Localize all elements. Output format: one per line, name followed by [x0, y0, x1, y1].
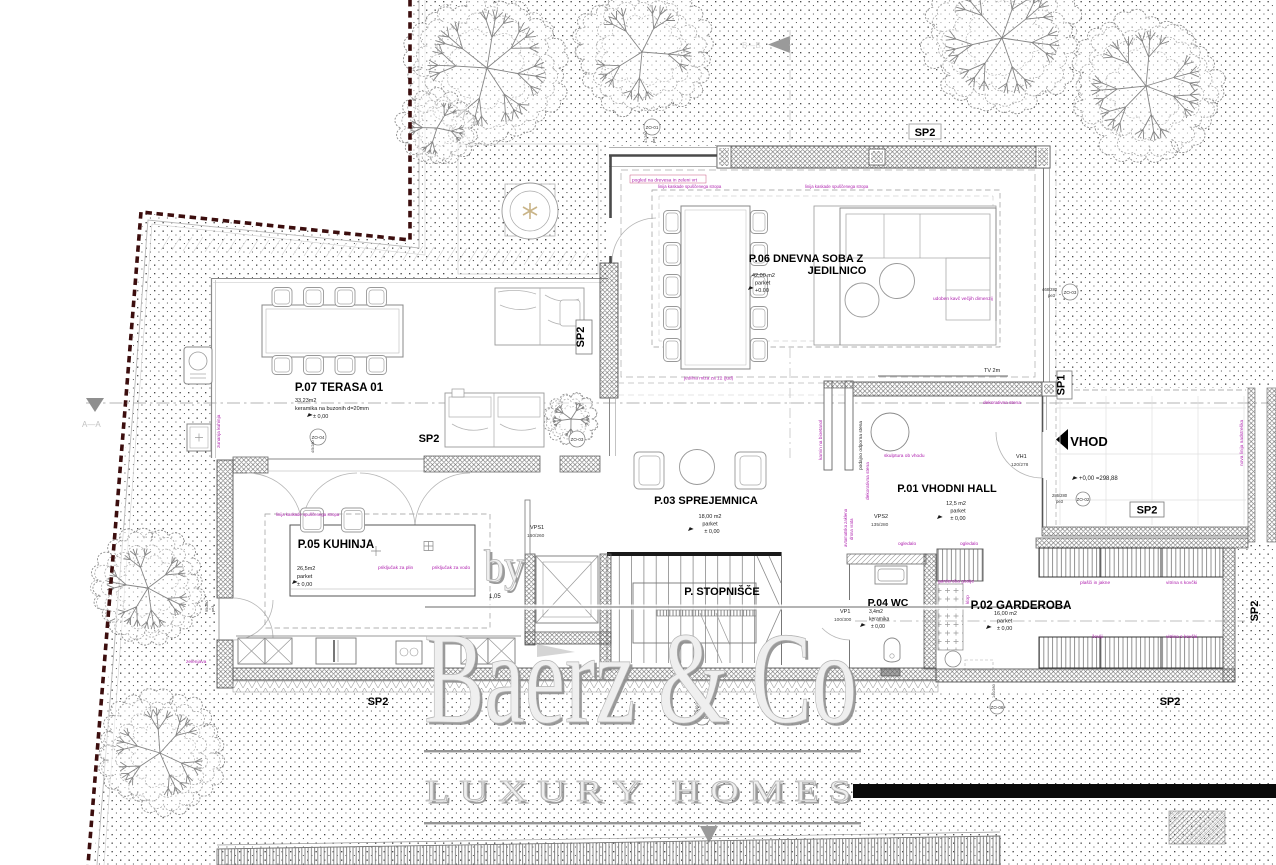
- svg-text:16,00 m2: 16,00 m2: [994, 611, 1017, 617]
- svg-text:P.03 SPREJEMNICA: P.03 SPREJEMNICA: [654, 495, 758, 507]
- svg-text:ZO-03: ZO-03: [1064, 290, 1077, 295]
- svg-text:dekorativna stena: dekorativna stena: [865, 462, 871, 500]
- svg-text:linija kaskade spuščenega stro: linija kaskade spuščenega stropa: [805, 184, 869, 189]
- svg-text:klop: klop: [965, 595, 971, 604]
- svg-text:JEDILNICO: JEDILNICO: [808, 265, 867, 277]
- svg-text:ZO-01: ZO-01: [646, 125, 659, 130]
- svg-text:pogled na drevesa in zeleni vr: pogled na drevesa in zeleni vrt: [632, 178, 698, 184]
- svg-text:P.01 VHODNI HALL: P.01 VHODNI HALL: [897, 483, 997, 495]
- svg-text:135/280: 135/280: [871, 522, 889, 528]
- svg-text:vitrina s kovčki: vitrina s kovčki: [1166, 580, 1197, 586]
- svg-text:plašči in jakne: plašči in jakne: [1080, 580, 1110, 586]
- svg-text:33,23m2: 33,23m2: [295, 398, 316, 404]
- svg-text:ZO-04: ZO-04: [312, 435, 325, 440]
- svg-text:VH1: VH1: [1016, 454, 1027, 460]
- svg-text:140/280: 140/280: [992, 684, 996, 698]
- svg-text:+0,00 =298,88: +0,00 =298,88: [1079, 476, 1118, 482]
- svg-text:pe4: pe4: [652, 137, 656, 143]
- svg-text:95/280: 95/280: [205, 600, 209, 612]
- svg-text:skulptura ob vhodu: skulptura ob vhodu: [884, 453, 925, 459]
- svg-text:1,05: 1,05: [489, 594, 501, 600]
- svg-text:286/280: 286/280: [1052, 493, 1068, 498]
- svg-text:± 0,00: ± 0,00: [871, 624, 885, 630]
- svg-text:Baerz & Co: Baerz & Co: [424, 606, 857, 751]
- svg-text:± 0,00: ± 0,00: [997, 626, 1012, 632]
- svg-text:SP2: SP2: [1249, 601, 1261, 622]
- svg-text:± 0,00: ± 0,00: [704, 529, 719, 535]
- svg-text:42,00 m2: 42,00 m2: [752, 273, 775, 279]
- svg-text:P.07 TERASA 01: P.07 TERASA 01: [295, 382, 384, 394]
- svg-text:4/5/280: 4/5/280: [311, 440, 315, 453]
- svg-text:P.05 KUHINJA: P.05 KUHINJA: [298, 539, 375, 551]
- svg-text:SP2: SP2: [575, 327, 587, 348]
- svg-text:468/280: 468/280: [1042, 287, 1058, 292]
- svg-text:47/280: 47/280: [644, 131, 648, 143]
- svg-text:ogledalo: ogledalo: [898, 541, 916, 547]
- svg-text:± 0,00: ± 0,00: [313, 414, 328, 420]
- svg-text:čevlji: čevlji: [1092, 634, 1103, 640]
- svg-text:linija kaskade spuščenega stro: linija kaskade spuščenega stropa: [276, 512, 340, 517]
- svg-text:120/278: 120/278: [1011, 462, 1029, 468]
- svg-text:nova linija nadstreška: nova linija nadstreška: [1239, 420, 1245, 466]
- svg-text:B—B: B—B: [742, 41, 761, 50]
- svg-text:TV 2m: TV 2m: [984, 368, 1001, 374]
- svg-text:avtomatska zaklena: avtomatska zaklena: [843, 508, 848, 547]
- svg-text:parket: parket: [702, 522, 718, 528]
- svg-text:VPS1: VPS1: [530, 525, 544, 531]
- svg-text:SP2: SP2: [1137, 505, 1158, 517]
- svg-text:jedilna miza za 12 (jud): jedilna miza za 12 (jud): [683, 376, 734, 382]
- svg-text:podajno odporna stena: podajno odporna stena: [858, 421, 864, 470]
- svg-text:SP2: SP2: [1160, 696, 1181, 708]
- svg-text:by: by: [484, 540, 524, 591]
- svg-text:± 0,00: ± 0,00: [950, 516, 965, 522]
- svg-text:A—A: A—A: [82, 420, 101, 429]
- svg-text:VPS2: VPS2: [874, 514, 888, 520]
- svg-text:linija kaskade spuščenega stro: linija kaskade spuščenega stropa: [658, 184, 722, 189]
- svg-text:+0.00: +0.00: [755, 288, 769, 294]
- svg-text:pe3: pe3: [1056, 499, 1064, 504]
- svg-text:ogledalo: ogledalo: [960, 541, 978, 547]
- svg-text:parket: parket: [755, 281, 771, 287]
- svg-text:18,00 m2: 18,00 m2: [699, 514, 722, 520]
- svg-text:3,4m2: 3,4m2: [869, 609, 883, 615]
- svg-text:± 0,00: ± 0,00: [297, 582, 312, 588]
- svg-text:P. STOPNIŠČE: P. STOPNIŠČE: [684, 585, 759, 598]
- svg-text:P.04 WC: P.04 WC: [868, 597, 909, 609]
- svg-text:12,5 m2: 12,5 m2: [946, 501, 966, 507]
- svg-text:SP2: SP2: [419, 433, 440, 445]
- svg-text:ZO-03: ZO-03: [571, 437, 584, 442]
- svg-text:zelenjava: zelenjava: [186, 659, 207, 665]
- svg-text:parket: parket: [297, 574, 313, 580]
- svg-text:P.06 DNEVNA SOBA Z: P.06 DNEVNA SOBA Z: [749, 253, 864, 265]
- svg-text:ZO-02: ZO-02: [1077, 497, 1090, 502]
- svg-text:keramika: keramika: [869, 617, 890, 623]
- svg-text:160/260: 160/260: [527, 533, 545, 539]
- svg-text:parket: parket: [997, 619, 1013, 625]
- svg-text:pe3: pe3: [1048, 293, 1056, 298]
- svg-text:kamin na bioetanol: kamin na bioetanol: [818, 420, 824, 460]
- svg-text:L U X U R Y H O M E S: L U X U R Y H O M E S: [425, 773, 851, 808]
- svg-text:VHOD: VHOD: [1070, 434, 1108, 449]
- svg-text:priključak za vodo: priključak za vodo: [432, 565, 470, 571]
- svg-text:pe3: pe3: [211, 606, 215, 612]
- svg-text:P.02 GARDEROBA: P.02 GARDEROBA: [971, 600, 1072, 612]
- svg-text:dekorativna stena: dekorativna stena: [983, 400, 1021, 406]
- svg-text:zunanja kuhinja: zunanja kuhinja: [216, 414, 222, 448]
- svg-text:SP2: SP2: [915, 127, 936, 139]
- svg-text:drsna vrata: drsna vrata: [849, 518, 854, 540]
- svg-text:26,5m2: 26,5m2: [297, 566, 315, 572]
- svg-text:SP1: SP1: [1056, 375, 1068, 396]
- svg-text:parket: parket: [950, 509, 966, 515]
- svg-text:keramika na buzonih d=20mm: keramika na buzonih d=20mm: [295, 406, 369, 412]
- svg-text:vitrina s kovčki: vitrina s kovčki: [1166, 634, 1197, 640]
- svg-text:udoben kavč večjih dimenzij: udoben kavč večjih dimenzij: [933, 296, 993, 302]
- svg-text:priključak za plin: priključak za plin: [378, 565, 414, 571]
- svg-text:ZO-06: ZO-06: [991, 705, 1004, 710]
- svg-text:SP2: SP2: [368, 696, 389, 708]
- svg-text:garderoba gostje: garderoba gostje: [938, 579, 974, 585]
